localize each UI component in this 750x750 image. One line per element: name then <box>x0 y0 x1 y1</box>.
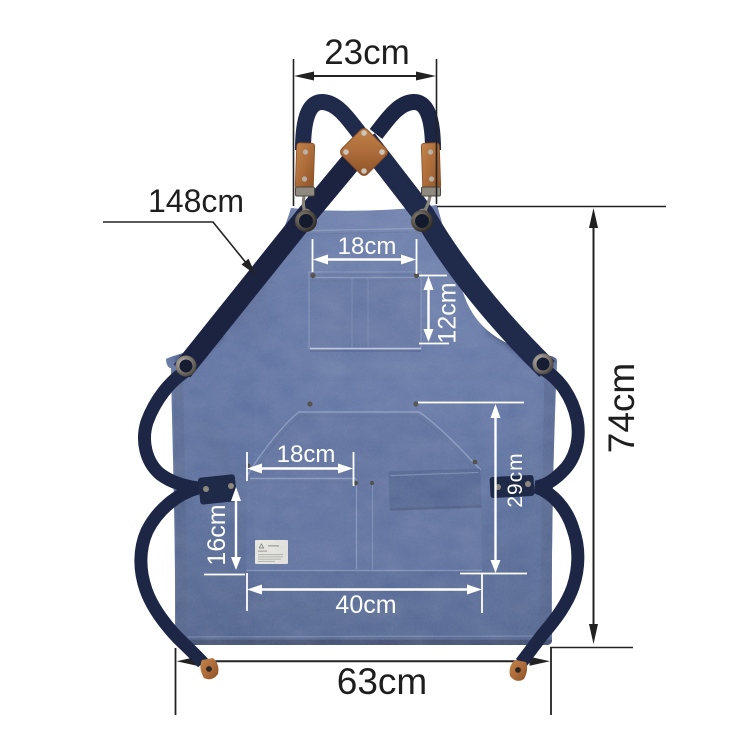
svg-text:18cm: 18cm <box>338 233 397 260</box>
svg-text:40cm: 40cm <box>335 591 396 619</box>
svg-text:16cm: 16cm <box>203 504 231 565</box>
svg-text:29cm: 29cm <box>504 452 527 507</box>
svg-text:148cm: 148cm <box>148 183 244 219</box>
svg-text:12cm: 12cm <box>434 282 462 343</box>
svg-text:74cm: 74cm <box>601 363 642 453</box>
svg-text:23cm: 23cm <box>324 33 410 72</box>
svg-text:18cm: 18cm <box>277 441 336 468</box>
svg-text:63cm: 63cm <box>337 661 427 702</box>
